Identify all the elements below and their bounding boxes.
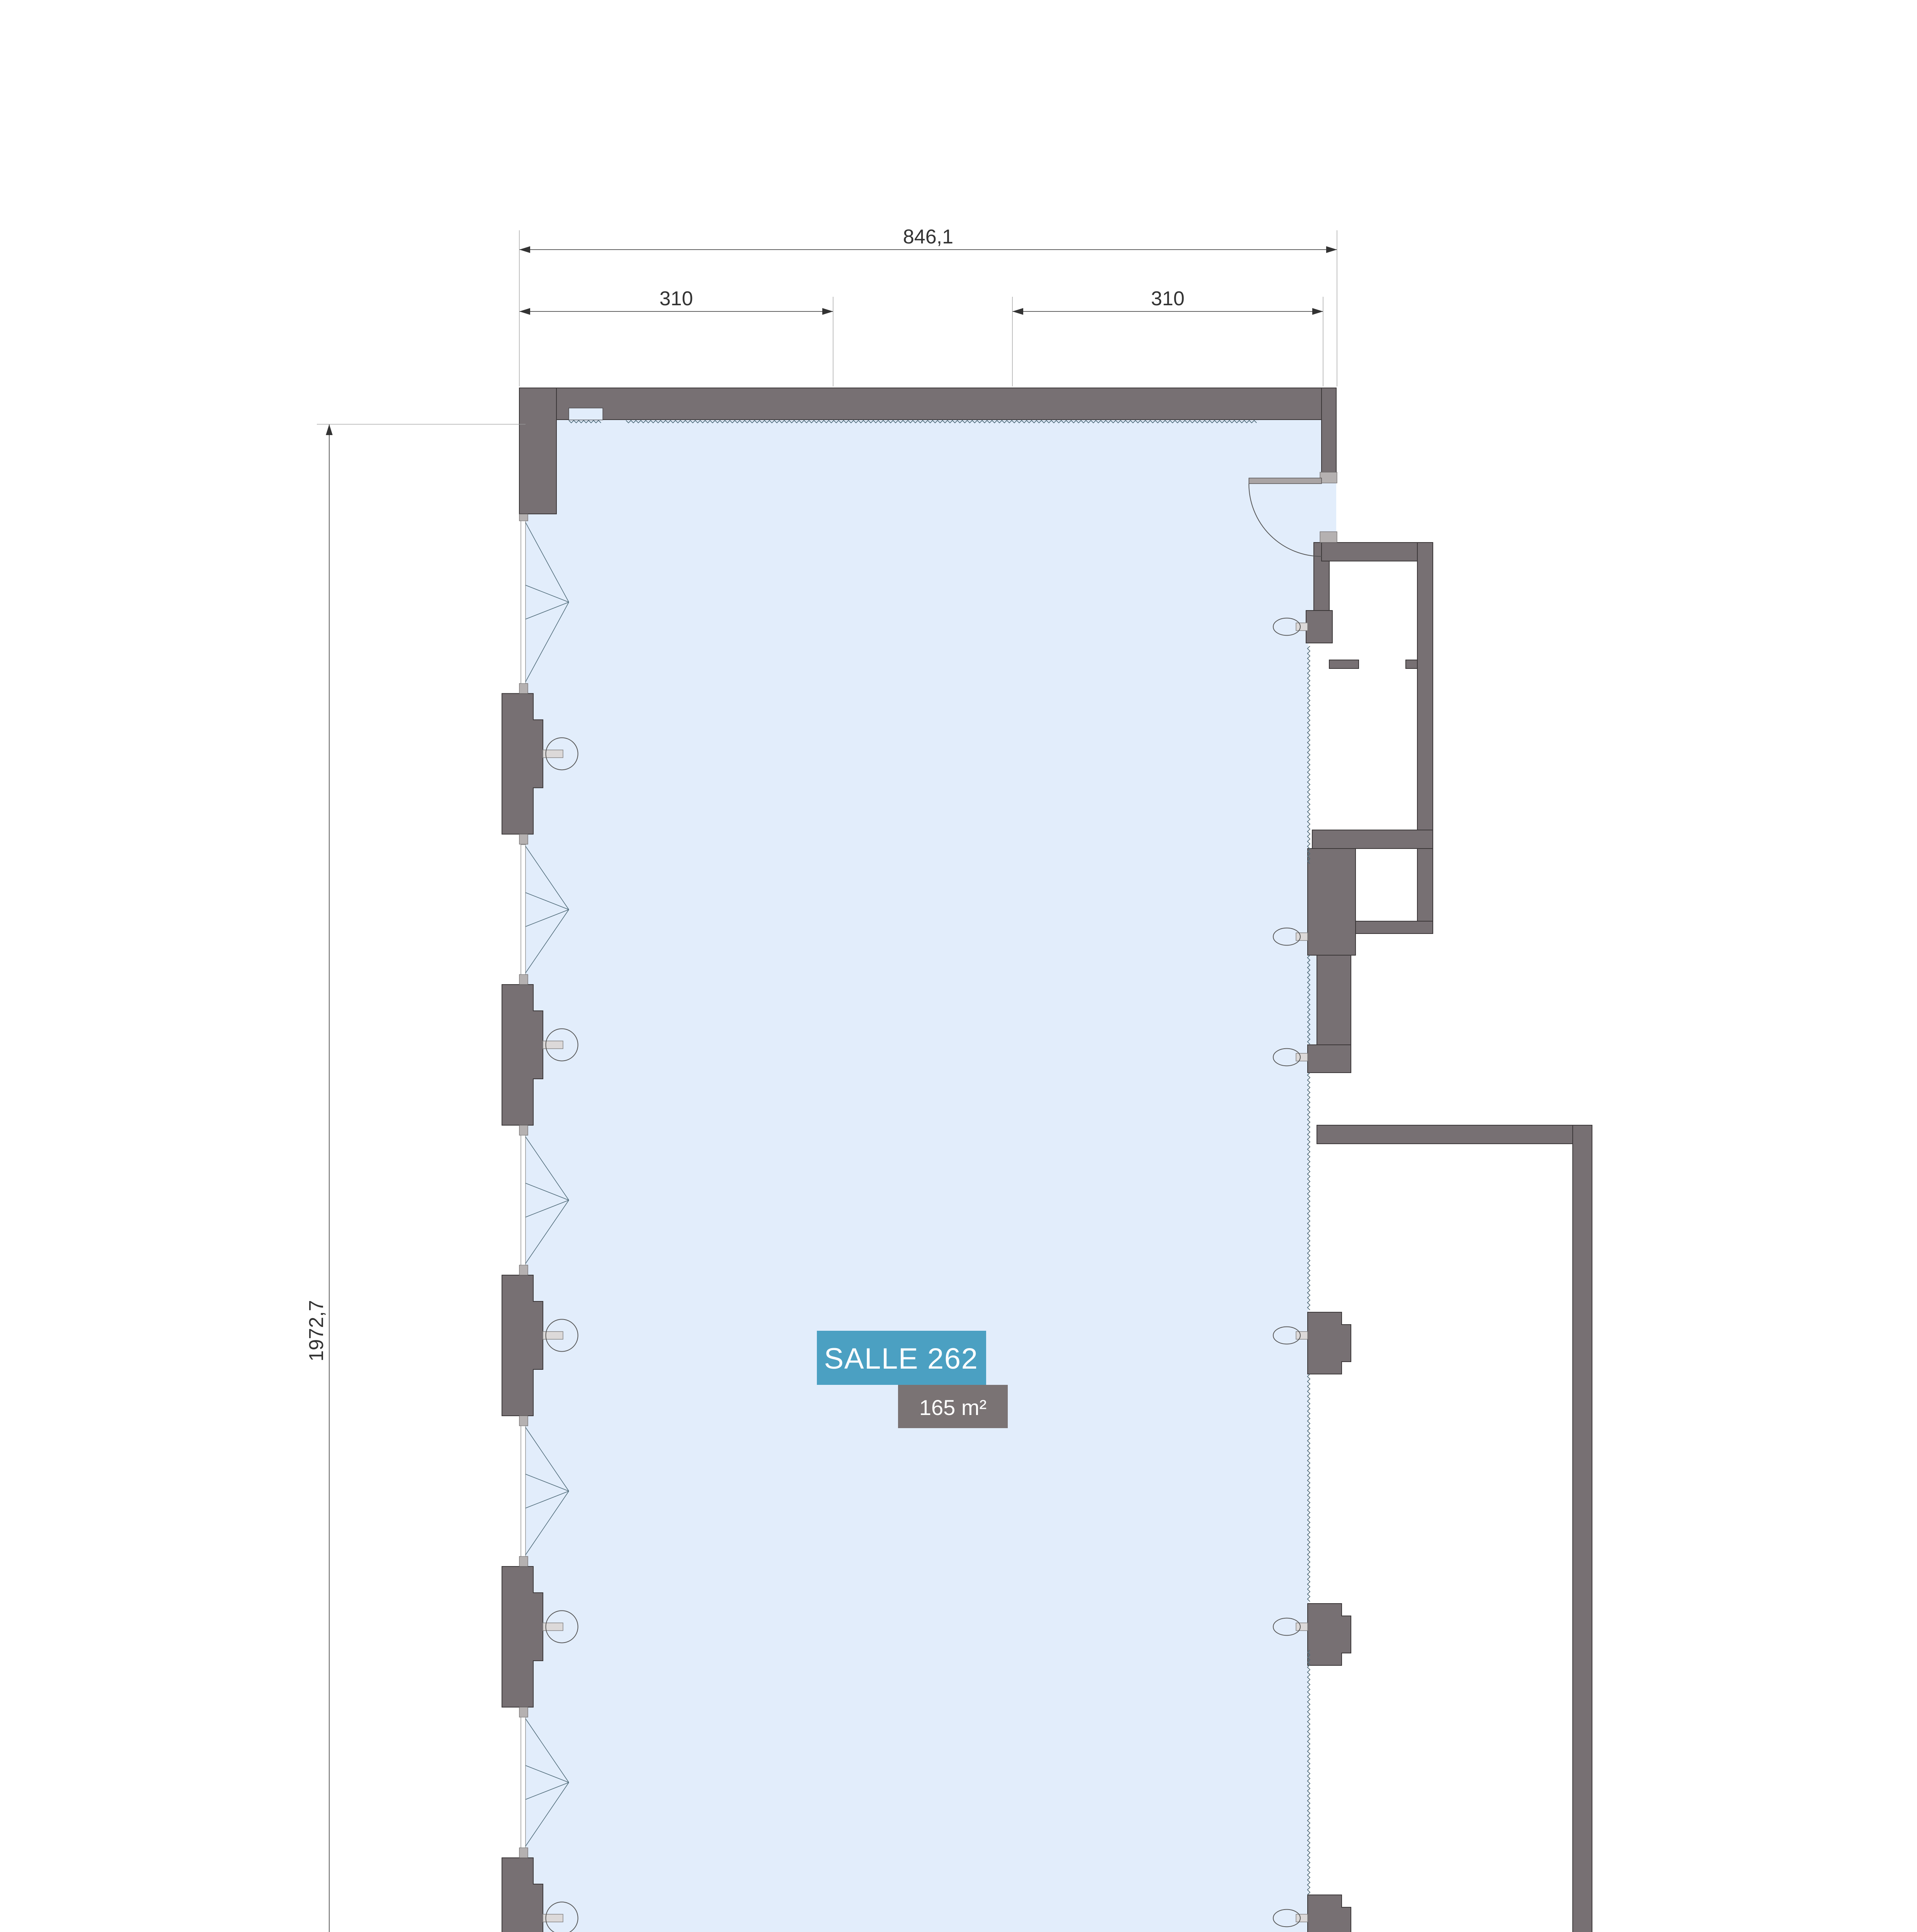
side-room-wall-bottom	[1312, 830, 1433, 849]
wall-right-upper	[1322, 388, 1336, 482]
radiator-pipe	[1296, 1623, 1308, 1631]
dimension-right-group-label: 310	[1151, 287, 1185, 310]
radiator-pipe	[1296, 1053, 1308, 1061]
dimension-arrow	[1326, 246, 1337, 253]
side-room-partition-right	[1406, 660, 1417, 668]
room-area-label: 165 m²	[919, 1395, 987, 1420]
wall-pilaster-right	[1308, 1604, 1351, 1665]
wall-pilaster-right	[1308, 1312, 1351, 1374]
door-jamb	[1320, 532, 1337, 543]
radiator-pipe	[1296, 933, 1308, 940]
dimension-arrow	[519, 246, 530, 253]
window-jamb	[519, 514, 528, 521]
window-glass	[521, 1135, 526, 1265]
room-salle-floor	[521, 420, 1336, 1932]
wall-right-pilaster-upper	[1306, 611, 1332, 643]
wall-right-thick	[1317, 955, 1351, 1045]
corridor-wall-right	[1573, 1125, 1592, 1932]
side-room-wall-top	[1322, 543, 1433, 561]
window-glass	[521, 1426, 526, 1556]
dimension-total-width-label: 846,1	[903, 226, 953, 248]
window-jamb	[519, 684, 528, 694]
dimension-left-group-label: 310	[660, 287, 693, 310]
radiator-pipe	[1296, 623, 1308, 631]
window-jamb	[519, 1707, 528, 1717]
side-room-partition-left	[1329, 660, 1359, 668]
floor-plan-page: 846,1 310 310 1972,7 SALLE 262 165 m² 0 …	[0, 0, 1917, 1932]
dimension-arrow	[326, 424, 333, 435]
wall-top	[519, 388, 1336, 420]
window-jamb	[519, 834, 528, 844]
window-jamb	[519, 1848, 528, 1858]
floor-plan-drawing: 846,1 310 310 1972,7 SALLE 262 165 m² 0 …	[0, 0, 1917, 1932]
dimension-arrow	[822, 308, 833, 315]
dimension-arrow	[1312, 308, 1323, 315]
wall-niche	[569, 408, 603, 420]
window-jamb	[519, 975, 528, 985]
dimension-arrow	[1012, 308, 1023, 315]
radiator-pipe	[1296, 1914, 1308, 1922]
wall-pilaster-right	[1308, 1895, 1351, 1932]
side-room-wall-lower-link	[1351, 921, 1433, 934]
window-glass	[521, 521, 526, 684]
window-glass	[521, 1717, 526, 1848]
window-jamb	[519, 1416, 528, 1426]
door-jamb	[1320, 472, 1337, 483]
window-glass	[521, 845, 526, 975]
side-room-wall-right	[1417, 543, 1433, 934]
wall-right-junction-block	[1308, 849, 1356, 955]
window-jamb	[519, 1265, 528, 1275]
door-leaf	[1249, 478, 1322, 483]
wall-left-corner-top	[519, 388, 556, 514]
dimension-total-height-label: 1972,7	[305, 1300, 328, 1361]
room-name-label: SALLE 262	[824, 1342, 978, 1375]
corridor-wall-top	[1317, 1125, 1592, 1144]
window-jamb	[519, 1125, 528, 1135]
window-jamb	[519, 1556, 528, 1566]
wall-right-block	[1308, 1045, 1351, 1073]
radiator-pipe	[1296, 1332, 1308, 1339]
dimension-arrow	[519, 308, 530, 315]
